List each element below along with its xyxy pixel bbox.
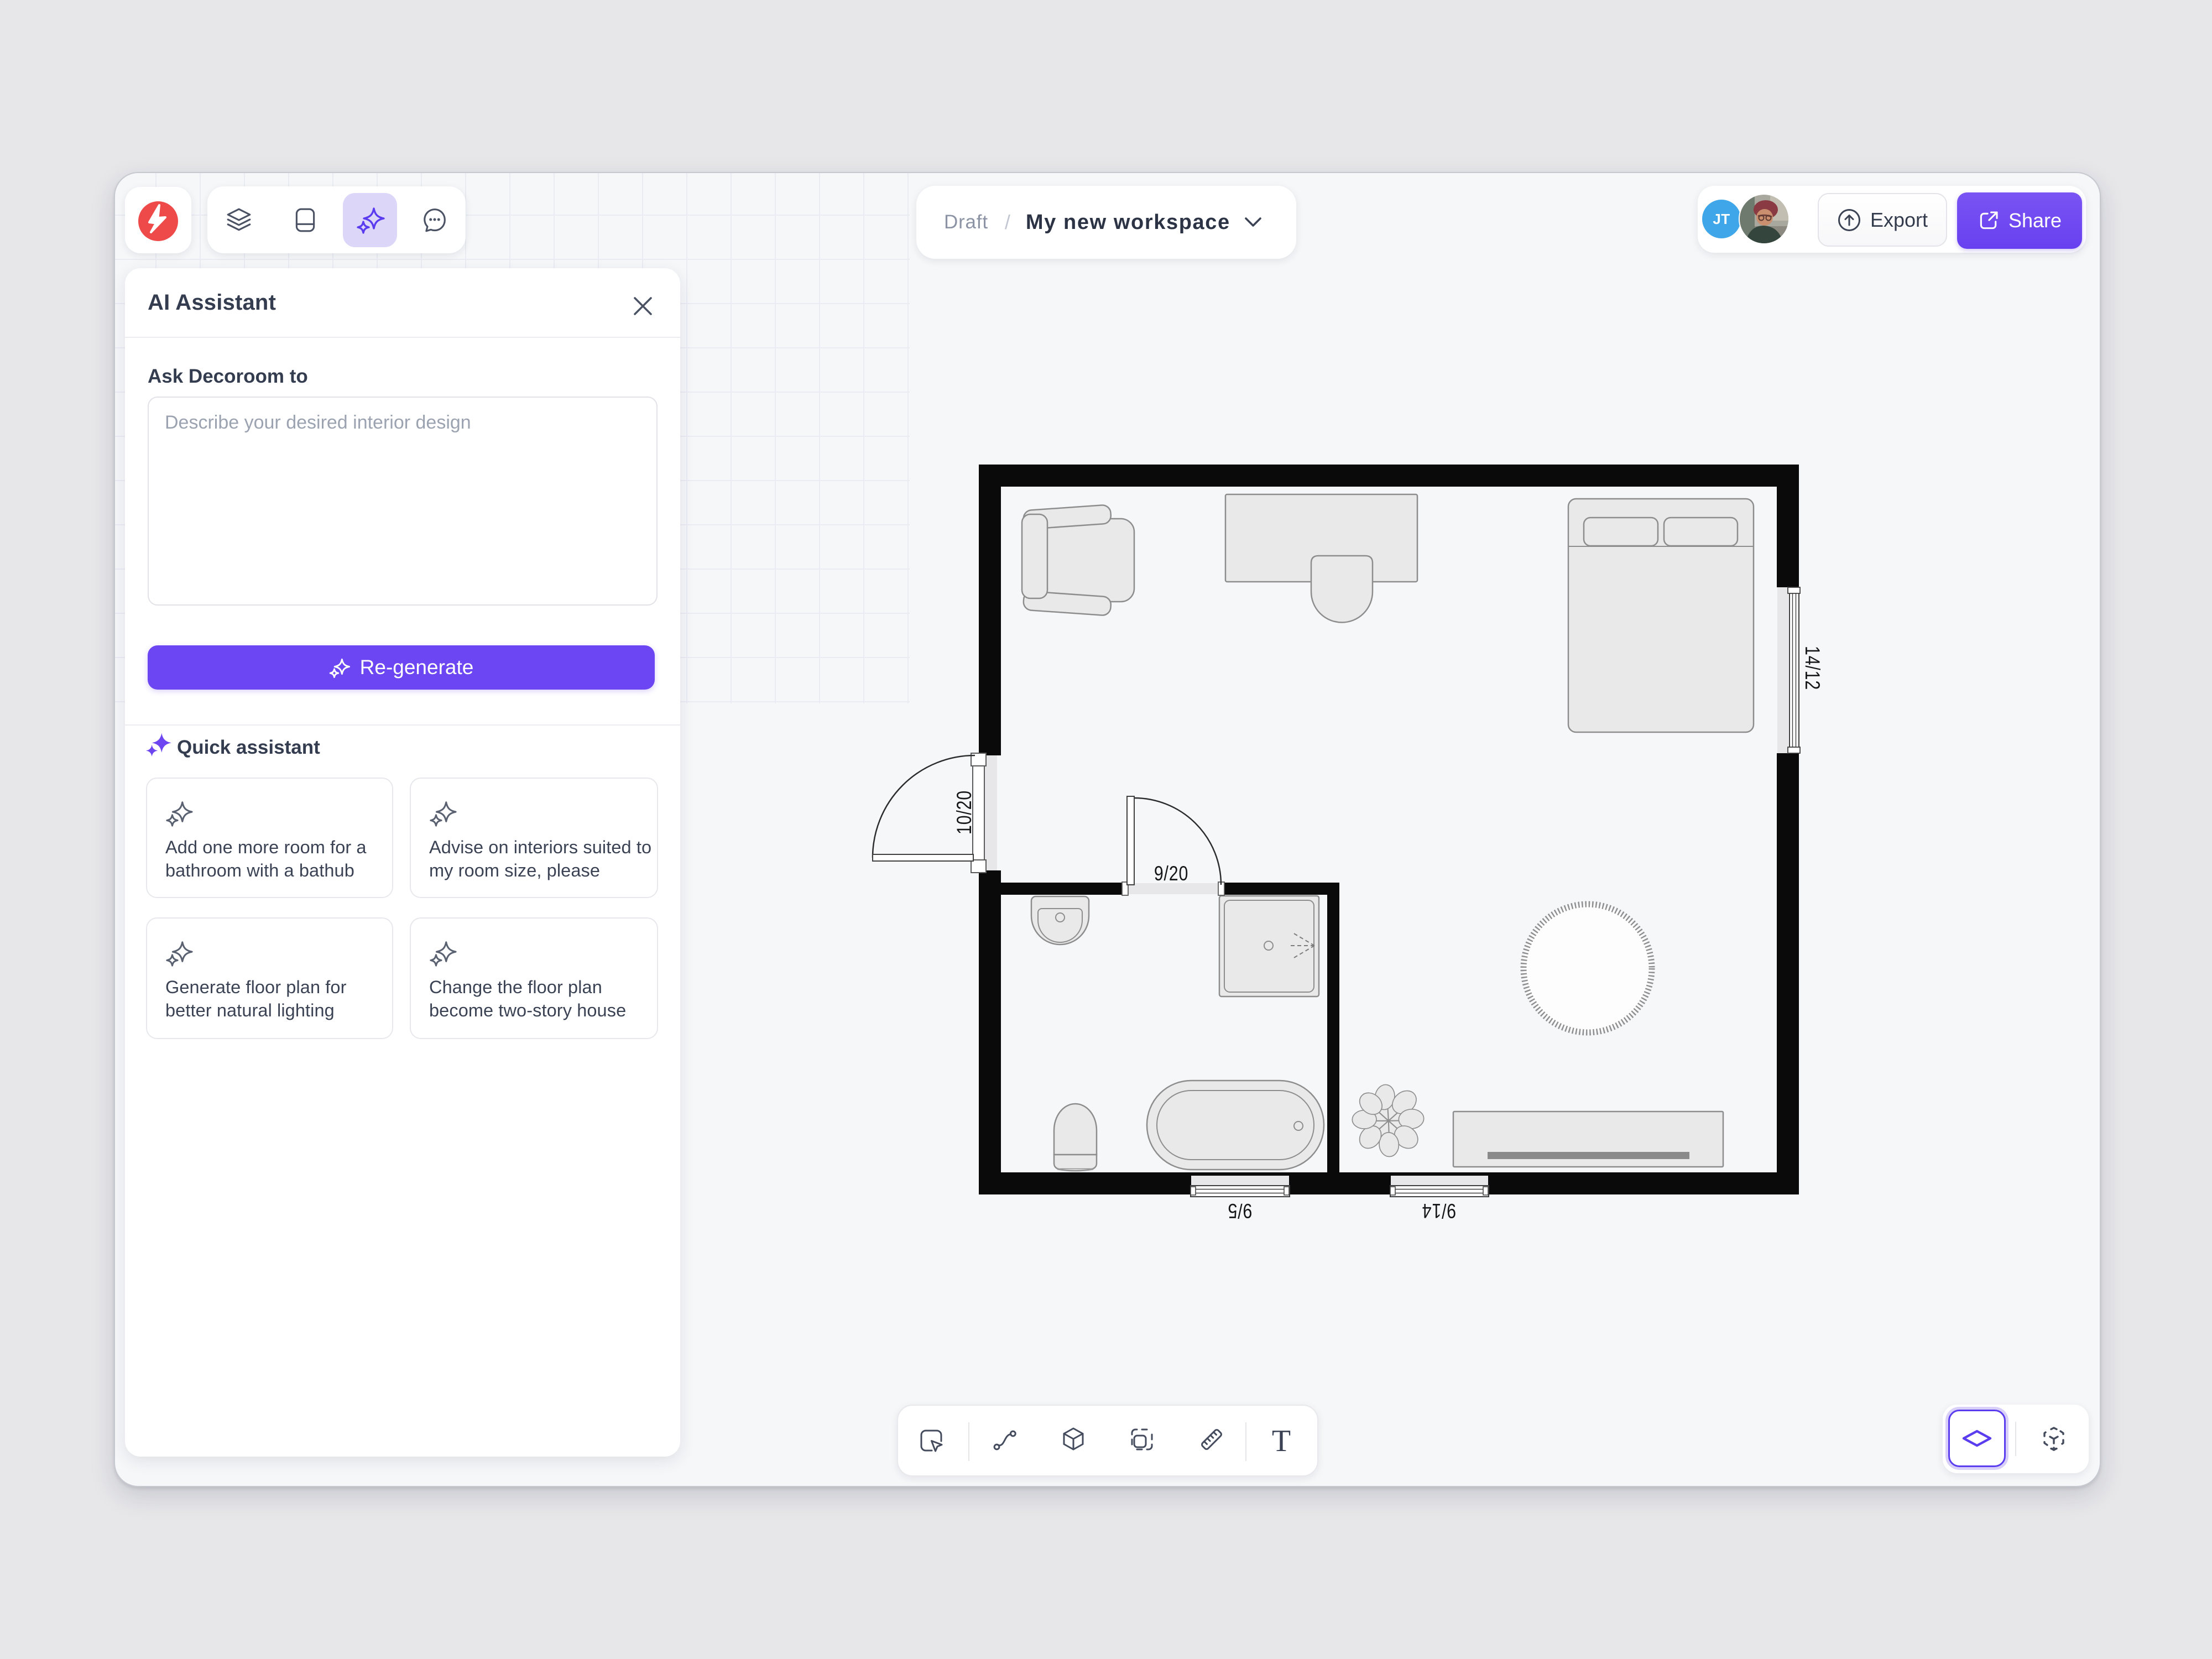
svg-text:9/5: 9/5 [1228, 1199, 1253, 1222]
svg-text:10/20: 10/20 [953, 790, 976, 834]
svg-text:9/20: 9/20 [1154, 862, 1188, 885]
svg-text:14/12: 14/12 [1801, 646, 1824, 690]
svg-text:9/14: 9/14 [1422, 1199, 1456, 1222]
